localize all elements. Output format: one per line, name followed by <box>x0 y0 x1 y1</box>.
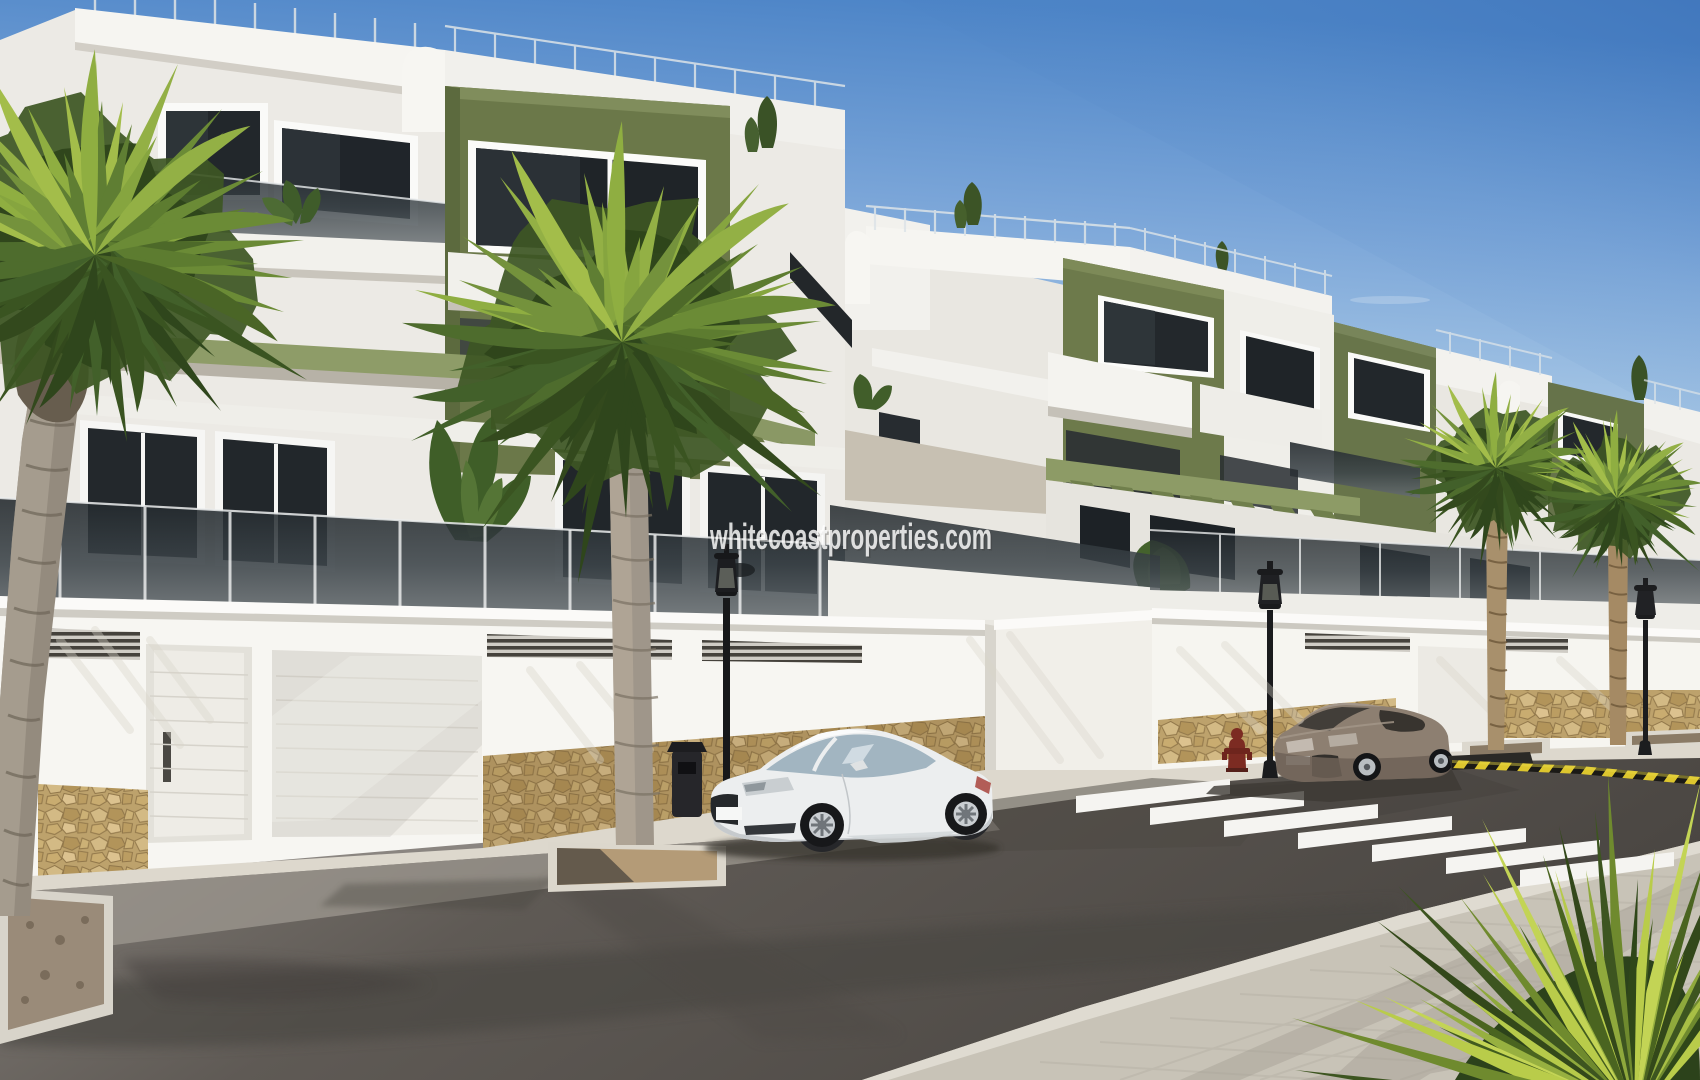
svg-text:whitecoastproperties.com: whitecoastproperties.com <box>709 516 992 557</box>
